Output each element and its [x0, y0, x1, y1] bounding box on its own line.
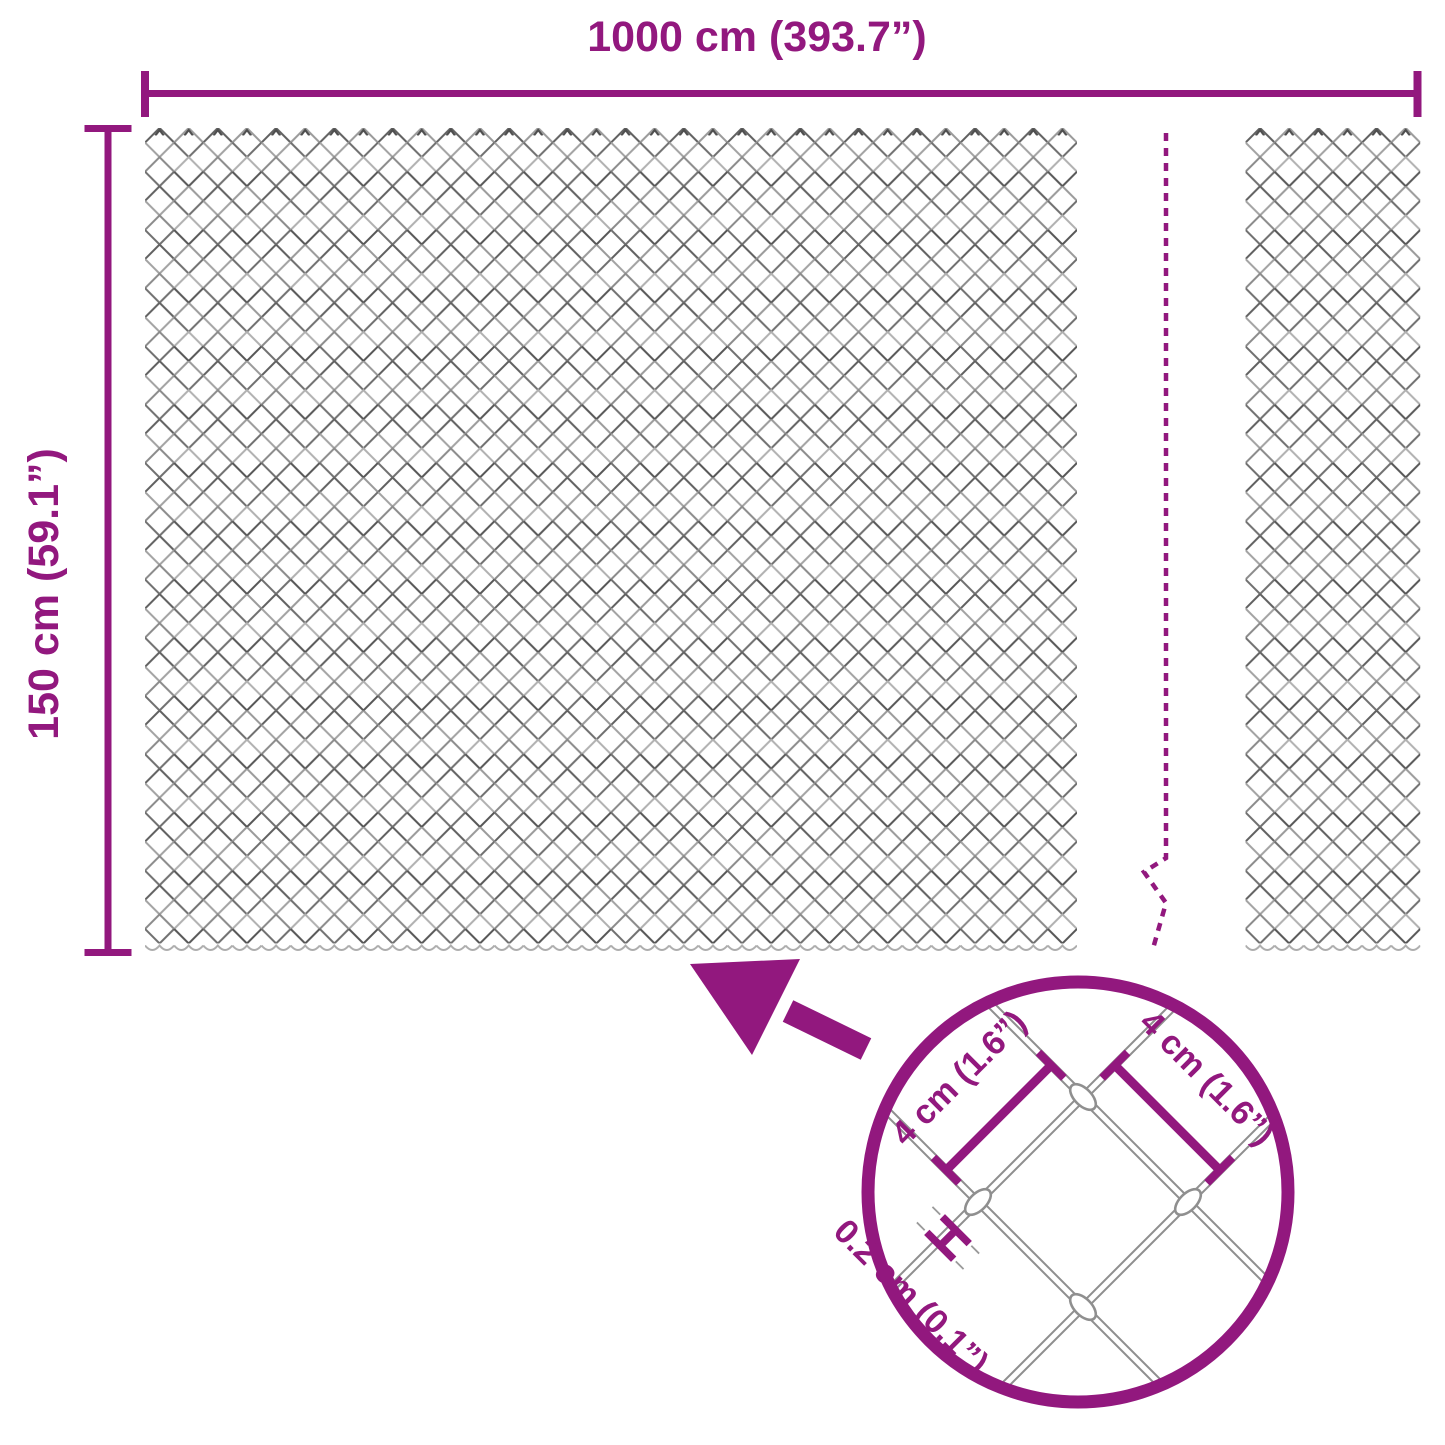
mesh-panel-main-top-selvage — [145, 128, 1077, 136]
detail-callout-circle: 4 cm (1.6”) 4 cm (1.6”) 0.2 cm (0.1”) — [826, 959, 1315, 1435]
mesh-panel-right — [1246, 128, 1421, 955]
mesh-panel-right-fill — [1246, 128, 1421, 944]
detail-callout-arrow — [690, 959, 866, 1055]
mesh-panel-right-top-selvage — [1246, 128, 1421, 136]
arrow-head-icon — [690, 959, 800, 1055]
arrow-shaft — [788, 1011, 866, 1049]
mesh-panel-right-bottom-selvage — [1246, 944, 1421, 955]
mesh-panel-main-bottom-selvage — [145, 944, 1077, 955]
diagram-canvas: 1000 cm (393.7”) 150 cm (59.1”) — [0, 0, 1445, 1445]
fence-dimension-diagram: 1000 cm (393.7”) 150 cm (59.1”) — [0, 0, 1445, 1445]
mesh-panel-main — [145, 128, 1077, 955]
total-width-label: 1000 cm (393.7”) — [587, 13, 926, 61]
mesh-panel-main-fill — [145, 128, 1077, 944]
total-height-label: 150 cm (59.1”) — [20, 448, 68, 740]
length-break-dashed-line — [1144, 133, 1166, 952]
